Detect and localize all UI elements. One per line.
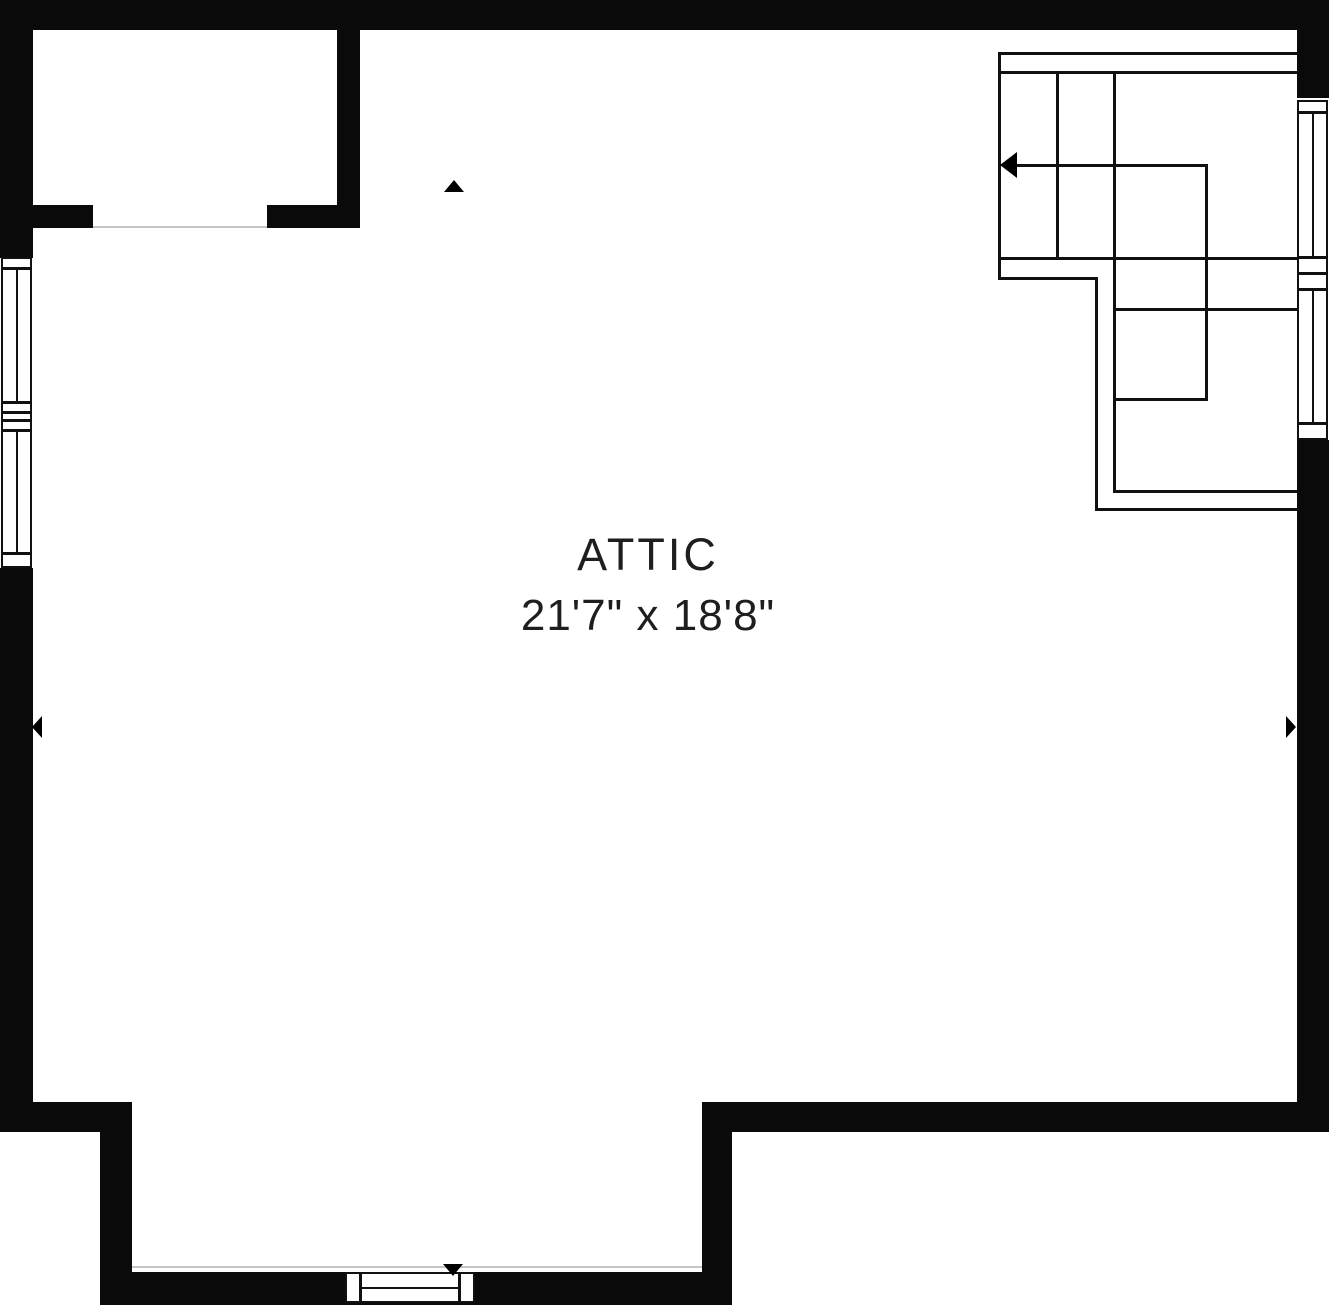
stair-bottom-edge	[1095, 508, 1297, 511]
closet-bottom-wall-left	[33, 205, 93, 228]
direction-marker-up-icon	[444, 180, 464, 192]
left-window-upper	[1, 268, 32, 403]
left-wall-upper	[0, 0, 33, 258]
room-label: ATTIC 21'7" x 18'8"	[521, 530, 775, 640]
closet-right-wall	[337, 30, 360, 228]
floor-plan: ATTIC 21'7" x 18'8"	[0, 0, 1329, 1305]
stair-lower-edge-left	[1095, 277, 1098, 511]
room-name: ATTIC	[521, 530, 775, 580]
window-pane-line	[362, 1287, 458, 1289]
bottom-window	[360, 1272, 460, 1303]
right-window-lower	[1297, 289, 1328, 424]
stair-top-rail-inner	[998, 71, 1297, 74]
closet-door-threshold	[93, 226, 267, 228]
left-window-lower	[1, 430, 32, 554]
right-window-upper	[1297, 112, 1328, 258]
bottom-right-wall	[702, 1102, 1329, 1132]
window-pane-line	[16, 270, 18, 401]
bottom-window-cap-left	[345, 1272, 361, 1303]
stair-direction-line	[1005, 164, 1208, 167]
right-window-sill-mid-2	[1297, 273, 1328, 290]
stair-mid-rail	[998, 257, 1297, 260]
stair-landing-bottom	[1113, 398, 1208, 401]
right-window-sill-bottom	[1297, 423, 1328, 440]
stair-landing-top	[1113, 308, 1297, 311]
right-window-sill-mid-1	[1297, 257, 1328, 274]
window-pane-line	[16, 432, 18, 552]
direction-marker-right-icon	[1286, 716, 1296, 738]
stair-lower-rail	[1113, 490, 1297, 493]
direction-marker-left-icon	[32, 716, 42, 738]
room-dimensions: 21'7" x 18'8"	[521, 592, 775, 640]
stair-arrow-head-icon	[1000, 152, 1017, 178]
window-pane-line	[1312, 291, 1314, 422]
right-wall-lower	[1297, 440, 1329, 1132]
left-wall-lower	[0, 568, 33, 1102]
stair-lower-edge-top	[998, 277, 1098, 280]
bottom-window-cap-right	[459, 1272, 475, 1303]
direction-marker-down-icon	[443, 1264, 463, 1276]
closet-bottom-wall-right	[267, 205, 360, 228]
right-step-vertical-wall	[702, 1102, 732, 1305]
bottom-wall-face-line	[132, 1266, 702, 1268]
stair-center-rail	[1205, 164, 1208, 401]
stair-tread-2	[1113, 71, 1116, 493]
window-pane-line	[1312, 114, 1314, 256]
top-wall	[0, 0, 1329, 30]
left-window-sill-bottom	[1, 553, 32, 568]
left-step-horizontal-wall	[0, 1102, 132, 1132]
stair-top-rail-outer	[998, 52, 1297, 55]
right-wall-upper	[1297, 0, 1329, 98]
